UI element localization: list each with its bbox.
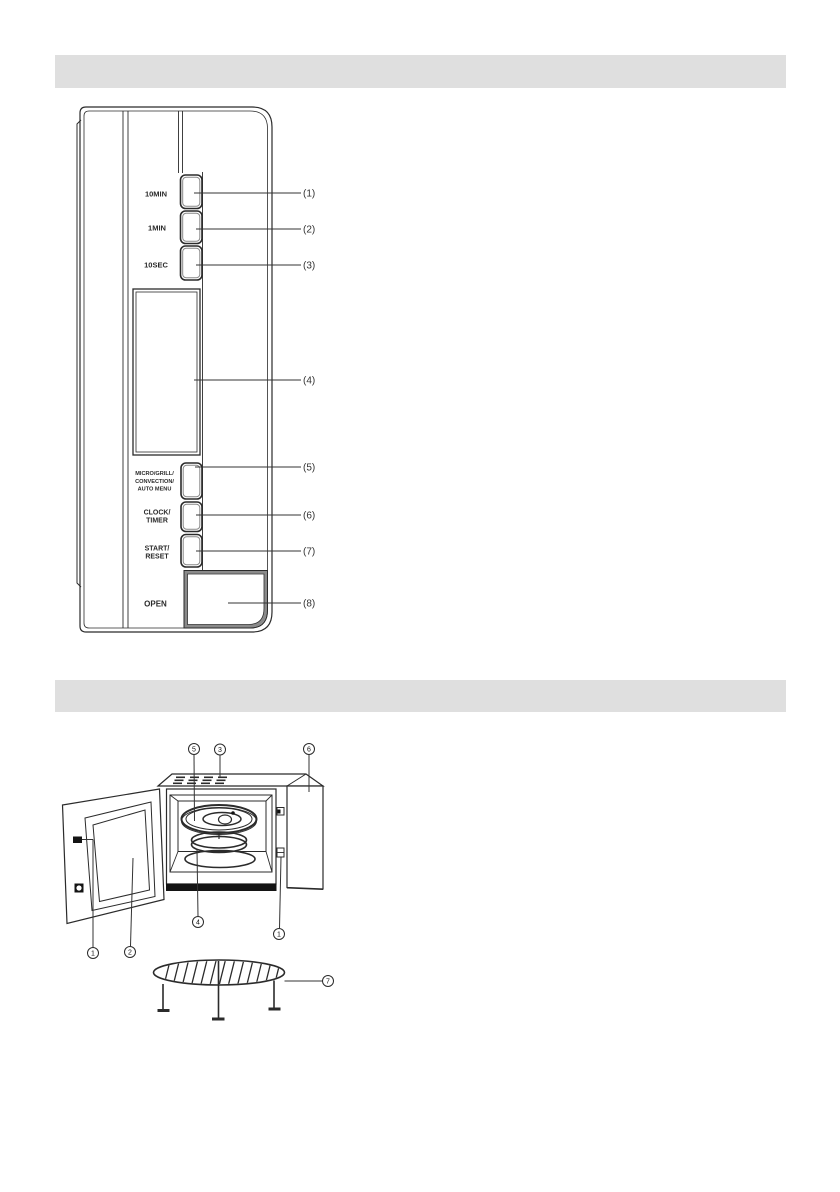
tray-dot [231,811,235,815]
oven-door [63,789,165,924]
label-10min: 10MIN [145,190,167,199]
oven-diagram: 5 3 6 1 2 4 [63,744,334,1020]
panel-labels: 10MIN 1MIN 10SEC MICRO/GRILL/ CONVECTION… [135,190,174,609]
label-open: OPEN [144,600,167,609]
label-micro-line3: AUTO MENU [138,487,172,493]
callout-8: (8) [303,599,315,610]
button-10min [181,175,203,209]
label-10sec: 10SEC [144,261,168,270]
panel-callouts: (1) (2) (3) (4) (5) (6) (7) (8) [194,189,315,610]
callout-6: (6) [303,511,315,522]
button-clock-timer [181,502,202,532]
line-art: 10MIN 1MIN 10SEC MICRO/GRILL/ CONVECTION… [0,0,840,1192]
door-latch-upper [73,837,82,844]
control-panel-side [287,786,323,890]
manual-page: 10MIN 1MIN 10SEC MICRO/GRILL/ CONVECTION… [0,0,840,1192]
callout-latch-right: 1 [277,932,281,939]
callout-1: (1) [303,189,315,200]
callout-5: (5) [303,463,315,474]
label-reset: RESET [145,554,169,561]
callout-ring: 4 [196,920,200,927]
label-start: START/ [145,546,170,553]
open-button-area [184,571,268,629]
button-10sec [181,246,203,280]
grill-rack [154,957,285,1019]
control-panel-diagram: 10MIN 1MIN 10SEC MICRO/GRILL/ CONVECTION… [77,107,315,632]
label-timer: TIMER [146,518,168,525]
button-1min [181,211,203,244]
callout-7: (7) [303,547,315,558]
button-micro-grill-convection [181,463,202,499]
callout-panel-box: 6 [307,747,311,754]
label-clock: CLOCK/ [144,510,171,517]
callout-rack: 7 [326,979,330,986]
callout-4: (4) [303,376,315,387]
label-micro-line2: CONVECTION/ [135,479,174,485]
label-1min: 1MIN [148,224,166,233]
callout-3: (3) [303,261,315,272]
panel-outline [77,107,272,632]
callout-tray: 5 [192,747,196,754]
callout-window: 2 [128,950,132,957]
display-window [133,289,200,455]
label-micro-line1: MICRO/GRILL/ [135,471,174,477]
time-buttons [181,175,203,280]
callout-vent: 3 [218,747,222,754]
callout-2: (2) [303,225,315,236]
callout-latch-left: 1 [91,951,95,958]
